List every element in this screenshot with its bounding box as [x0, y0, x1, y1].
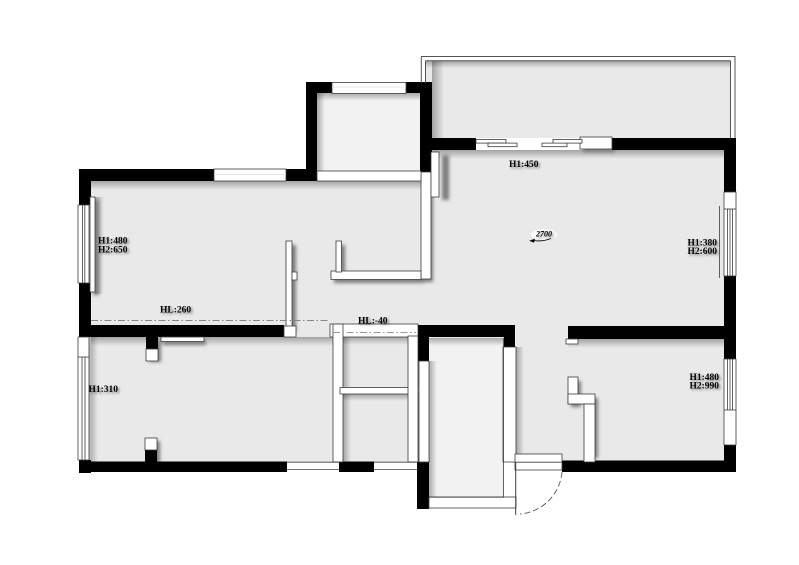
- svg-text:2700: 2700: [535, 230, 552, 239]
- svg-text:H2:600: H2:600: [688, 247, 718, 257]
- svg-text:H1:310: H1:310: [89, 385, 119, 395]
- svg-text:H2:650: H2:650: [98, 246, 128, 256]
- svg-text:H1:450: H1:450: [509, 160, 539, 170]
- svg-text:HL:260: HL:260: [160, 306, 191, 316]
- svg-text:H2:990: H2:990: [690, 382, 720, 392]
- svg-text:HL:-40: HL:-40: [358, 317, 388, 327]
